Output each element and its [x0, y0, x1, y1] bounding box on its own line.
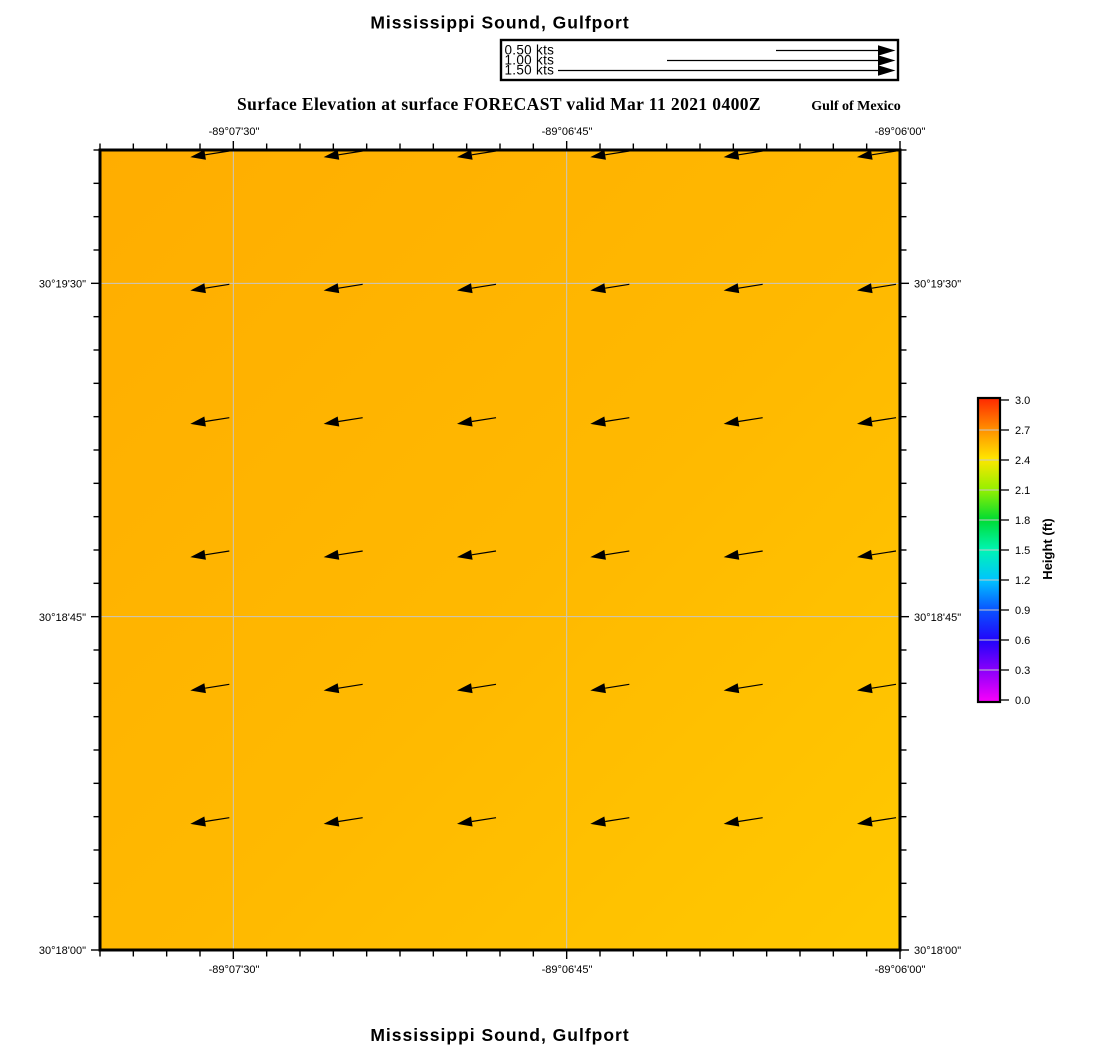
svg-text:-89°06'00": -89°06'00" [875, 964, 926, 976]
svg-text:30°18'00": 30°18'00" [914, 945, 961, 957]
svg-text:0.6: 0.6 [1015, 635, 1030, 647]
svg-text:30°18'00": 30°18'00" [39, 945, 86, 957]
svg-text:30°19'30": 30°19'30" [39, 279, 86, 291]
svg-text:2.4: 2.4 [1015, 455, 1030, 467]
svg-text:1.5: 1.5 [1015, 545, 1030, 557]
svg-text:0.0: 0.0 [1015, 695, 1030, 707]
svg-text:Mississippi Sound, Gulfport: Mississippi Sound, Gulfport [370, 13, 629, 33]
svg-text:0.3: 0.3 [1015, 665, 1030, 677]
svg-text:-89°07'30": -89°07'30" [209, 126, 260, 138]
svg-text:-89°06'45": -89°06'45" [542, 964, 593, 976]
svg-text:1.8: 1.8 [1015, 515, 1030, 527]
svg-text:0.9: 0.9 [1015, 605, 1030, 617]
svg-text:2.7: 2.7 [1015, 425, 1030, 437]
svg-text:-89°06'00": -89°06'00" [875, 126, 926, 138]
svg-text:-89°06'45": -89°06'45" [542, 126, 593, 138]
svg-text:3.0: 3.0 [1015, 395, 1030, 407]
svg-text:1.2: 1.2 [1015, 575, 1030, 587]
svg-text:2.1: 2.1 [1015, 485, 1030, 497]
svg-text:Gulf of Mexico: Gulf of Mexico [811, 99, 900, 114]
svg-text:Height (ft): Height (ft) [1040, 518, 1055, 579]
svg-text:-89°07'30": -89°07'30" [209, 964, 260, 976]
svg-text:30°18'45": 30°18'45" [39, 612, 86, 624]
svg-text:Mississippi Sound, Gulfport: Mississippi Sound, Gulfport [370, 1025, 629, 1045]
svg-text:30°19'30": 30°19'30" [914, 279, 961, 291]
svg-text:Surface Elevation at surface F: Surface Elevation at surface FORECAST va… [237, 94, 761, 114]
svg-text:1.50 kts: 1.50 kts [505, 63, 555, 78]
svg-text:30°18'45": 30°18'45" [914, 612, 961, 624]
